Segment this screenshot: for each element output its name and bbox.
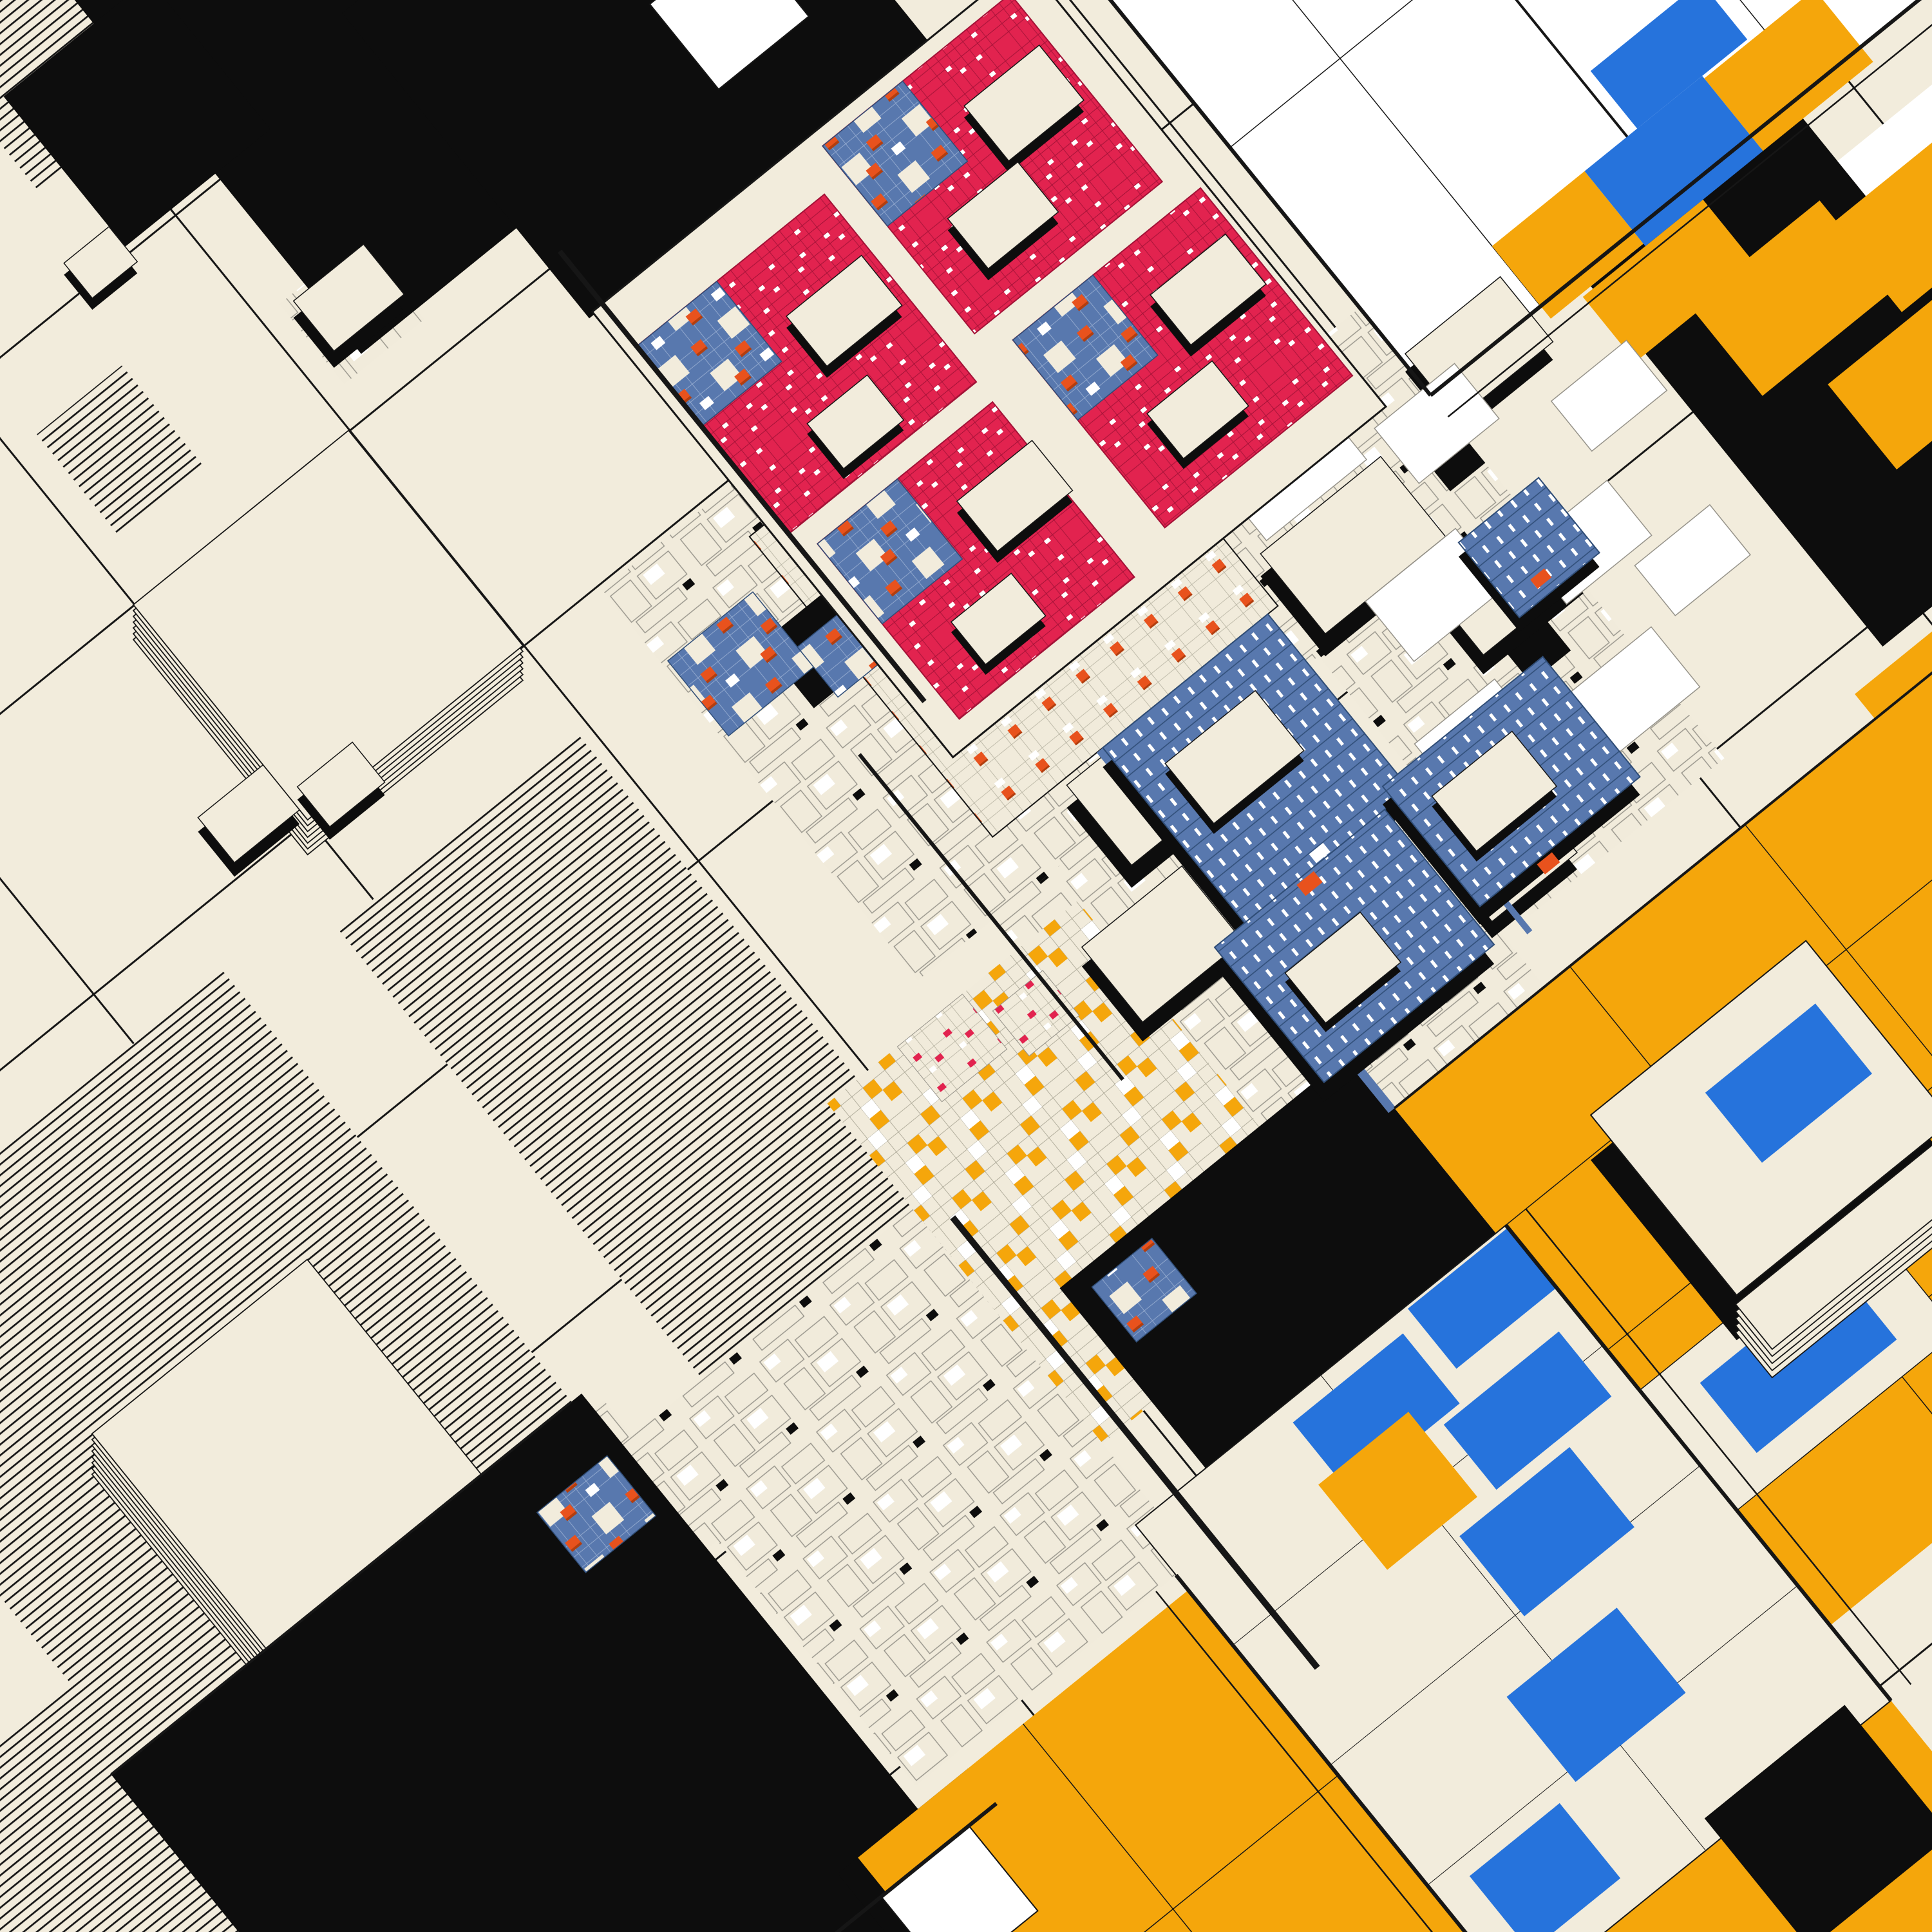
generative-isometric-artwork [0, 0, 1932, 1932]
artwork-stage [0, 0, 1932, 1932]
rotated-grid-scene [0, 0, 1932, 1932]
